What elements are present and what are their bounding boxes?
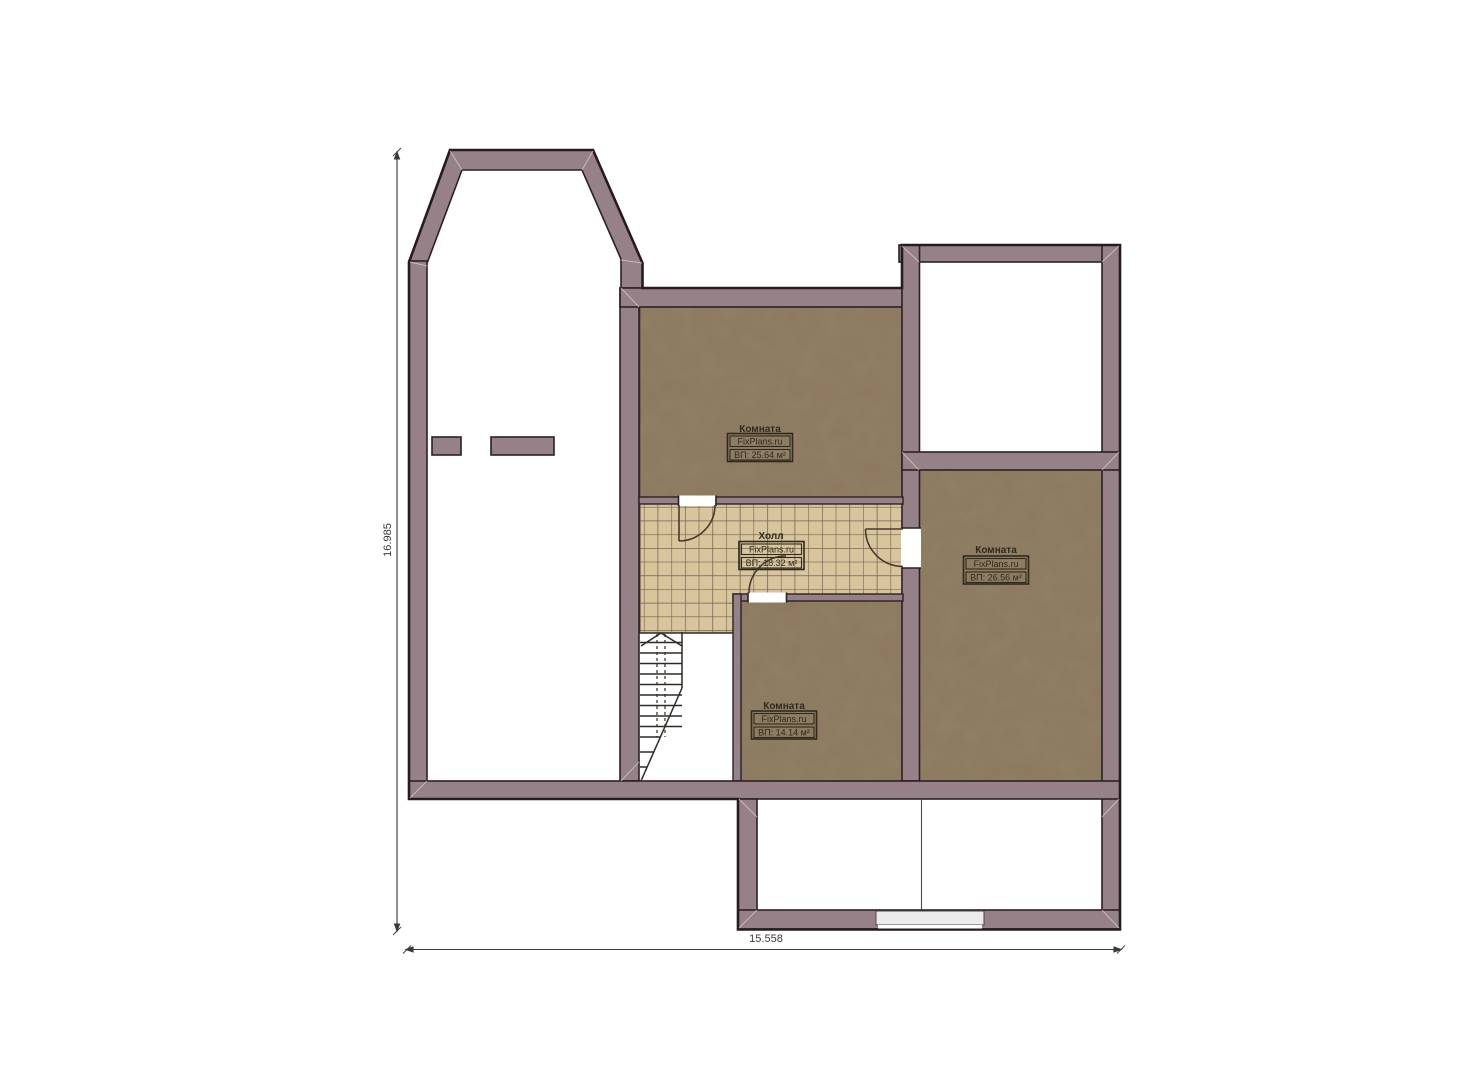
svg-text:FixPlans.ru: FixPlans.ru	[973, 559, 1018, 569]
svg-text:16.985: 16.985	[382, 523, 394, 557]
svg-text:15.558: 15.558	[749, 933, 783, 945]
svg-text:FixPlans.ru: FixPlans.ru	[761, 714, 806, 724]
svg-text:ВП: 25.64 м²: ВП: 25.64 м²	[734, 450, 786, 460]
svg-text:FixPlans.ru: FixPlans.ru	[737, 437, 782, 447]
svg-text:ВП: 18.32 м²: ВП: 18.32 м²	[746, 558, 798, 568]
svg-text:ВП: 14.14 м²: ВП: 14.14 м²	[758, 728, 810, 738]
svg-text:ВП: 26.56 м²: ВП: 26.56 м²	[970, 573, 1022, 583]
svg-text:FixPlans.ru: FixPlans.ru	[749, 545, 794, 555]
svg-text:Холл: Холл	[758, 531, 783, 542]
svg-text:Комната: Комната	[975, 545, 1017, 556]
